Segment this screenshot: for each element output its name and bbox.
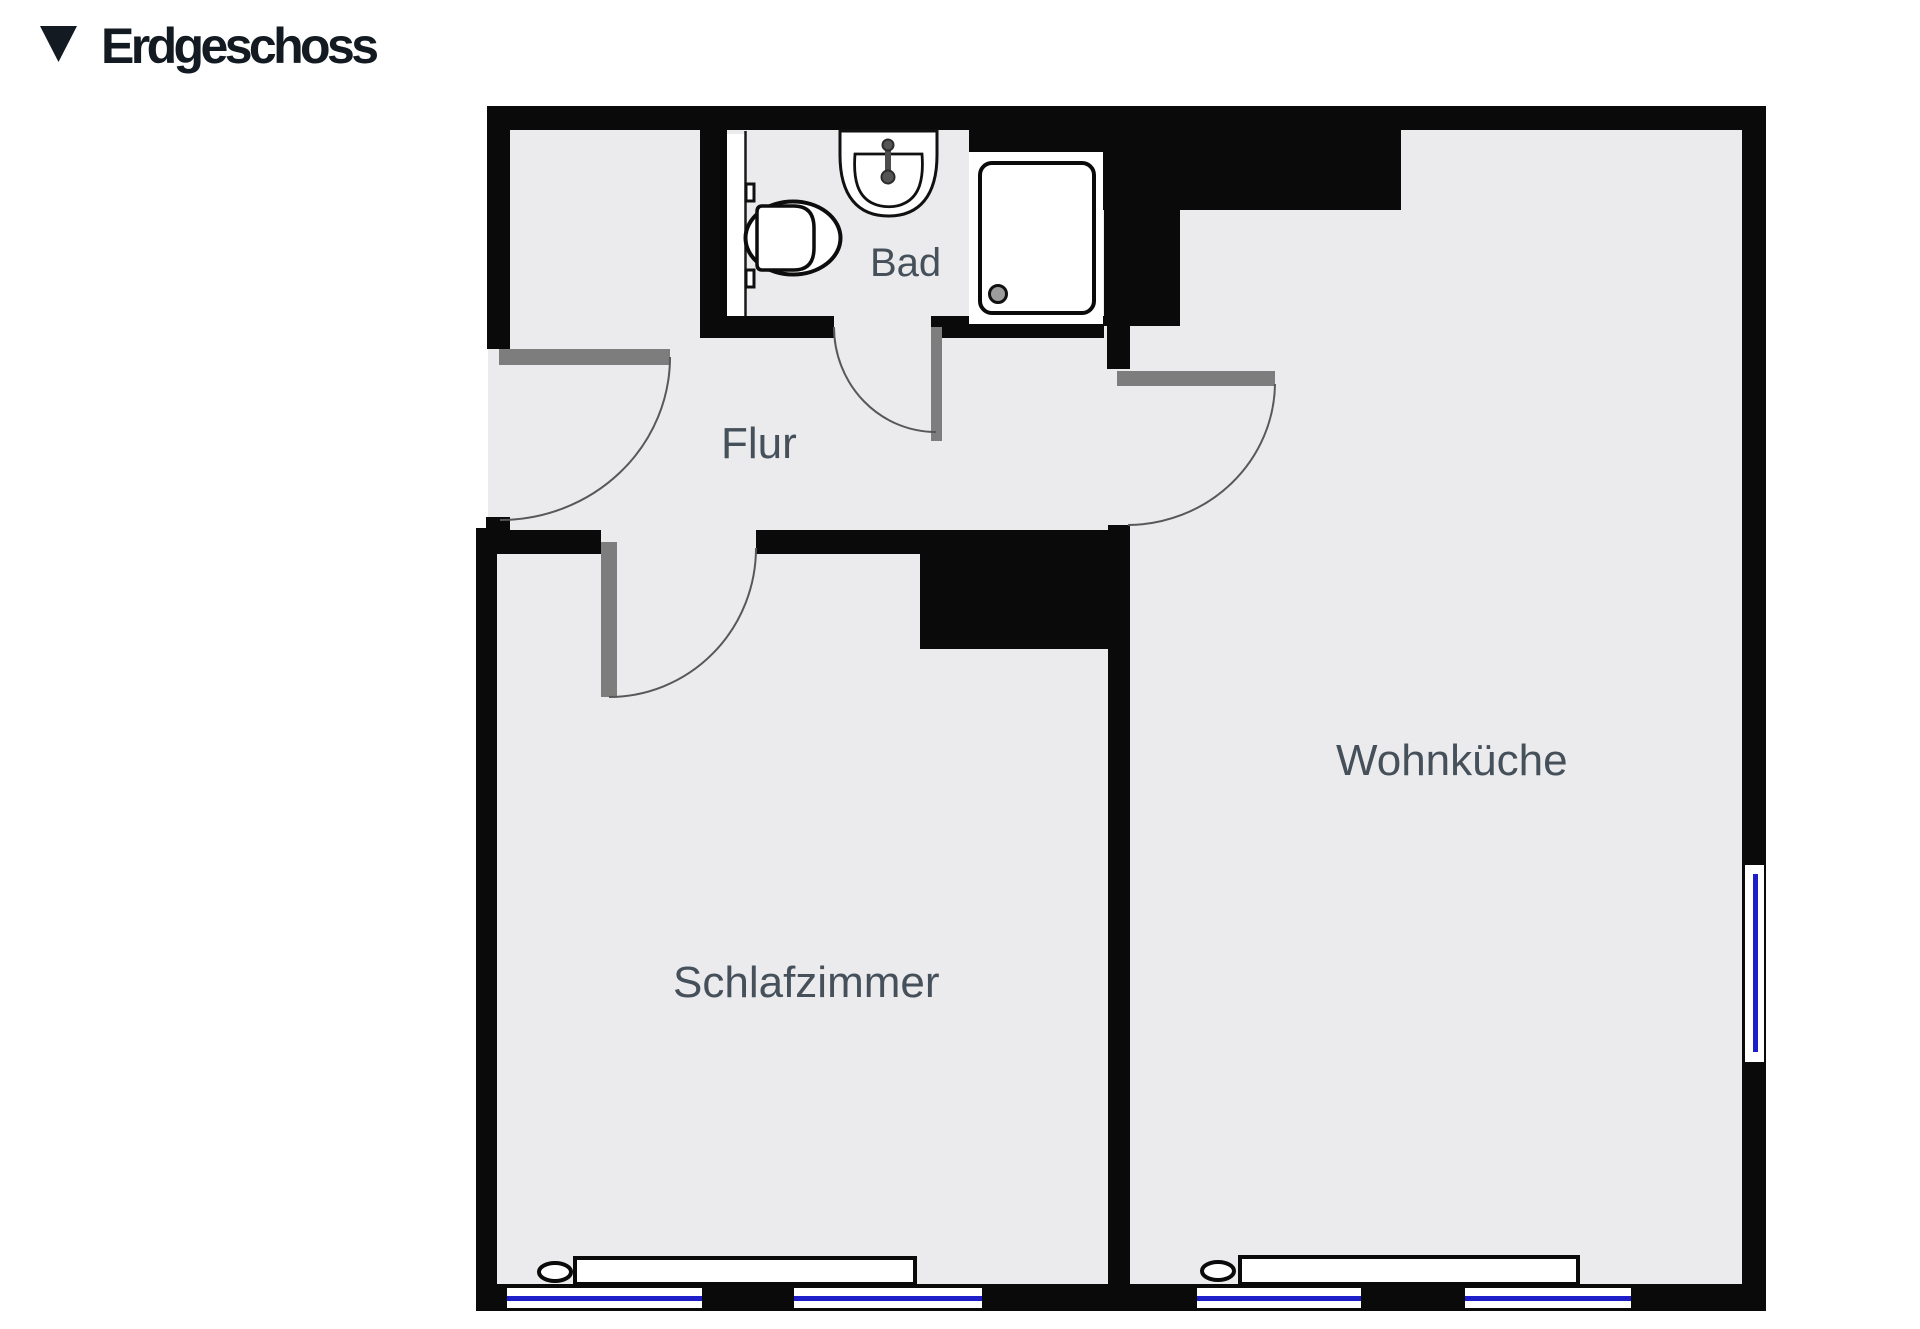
svg-text:Erdgeschoss: Erdgeschoss	[101, 18, 377, 74]
svg-text:Flur: Flur	[721, 419, 797, 468]
svg-text:Wohnküche: Wohnküche	[1336, 736, 1568, 785]
svg-text:Bad: Bad	[870, 241, 941, 285]
svg-text:Schlafzimmer: Schlafzimmer	[673, 958, 940, 1007]
